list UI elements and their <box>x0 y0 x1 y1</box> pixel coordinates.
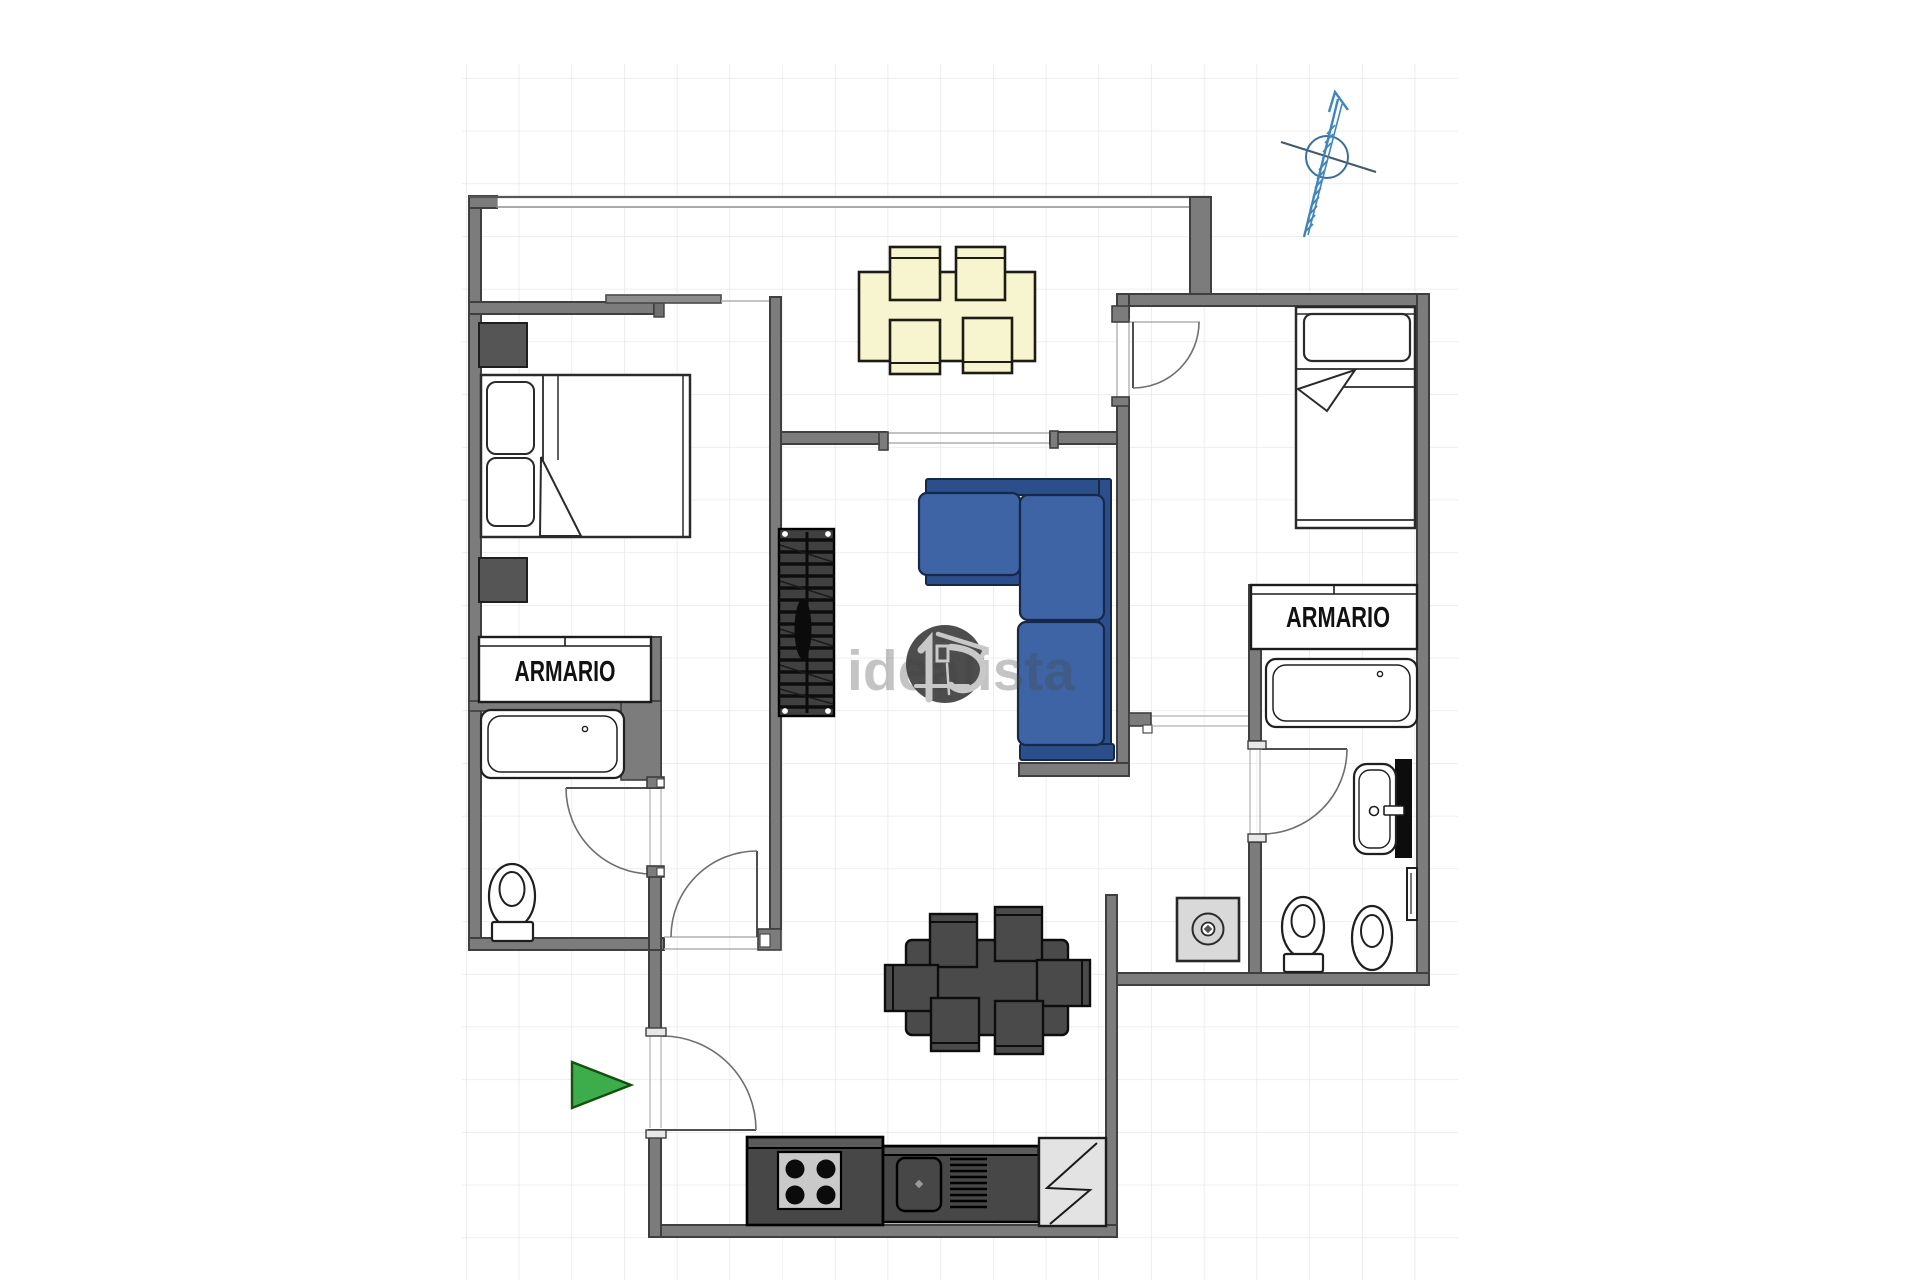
svg-text:ARMARIO: ARMARIO <box>1286 602 1390 634</box>
svg-text:ARMARIO: ARMARIO <box>515 656 616 688</box>
